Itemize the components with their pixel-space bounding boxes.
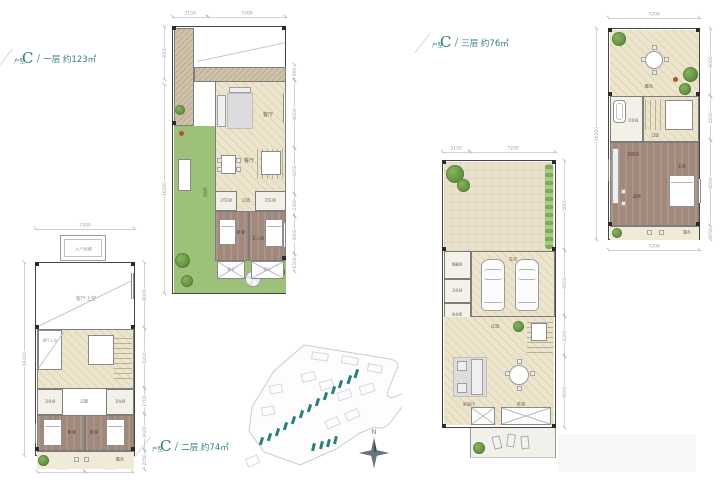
dim-floor2-right-2700: 2700 [144, 388, 145, 414]
room-label-storage: 储藏间 [452, 263, 463, 267]
dim-floor2-left-16200: 16200 [24, 262, 25, 456]
compass-icon [358, 436, 390, 470]
plan-floor2: 7200 入户雨棚 16200 8000 4200 2700 3000 2050… [10, 222, 160, 480]
wall-post [172, 121, 176, 125]
wall-post [608, 28, 612, 32]
wall-post [696, 92, 700, 96]
bed-icon [265, 219, 283, 247]
room-label-terrace-top: 露台 [645, 85, 653, 89]
chair-icon [517, 359, 522, 364]
armchair-icon [457, 361, 467, 371]
dim-floor1-left-3900: 3900 [164, 26, 165, 80]
chair-icon [217, 158, 222, 163]
room-label-void-living: 客厅上空 [76, 296, 96, 301]
caption-letter: C [160, 440, 171, 453]
wall-post [35, 262, 39, 266]
car-icon [515, 259, 539, 311]
dim-floor1-right-3900: 3900 [294, 216, 295, 254]
wardrobe-icon [612, 148, 619, 204]
room-label-bath1: 卫生间 [220, 199, 232, 203]
stair-void [261, 151, 281, 175]
chair-icon [84, 457, 89, 462]
bed-icon [106, 419, 125, 446]
dim-basement-right-6000b: 6000 [564, 356, 565, 428]
stairs [114, 335, 132, 379]
plan-floor3: 7200 16200 6000 4200 6000 2050 7200 露台 卫… [588, 8, 720, 260]
wall-post [442, 160, 446, 164]
room-label-dining: 餐厅 [244, 158, 254, 163]
room-label-sitting: 起居 [633, 195, 641, 199]
bed-icon [669, 175, 695, 207]
tree-icon [457, 179, 470, 192]
ramp-edge-line [197, 42, 285, 62]
stairs [645, 100, 665, 130]
window [283, 93, 286, 123]
chair-icon [652, 70, 657, 75]
room-label-bath: 卫生间 [452, 289, 463, 293]
dim-floor2-right-8000: 8000 [144, 262, 145, 328]
wall-post [35, 325, 39, 329]
chair-icon [659, 230, 664, 235]
caption-letter: C [440, 36, 451, 49]
window [131, 273, 134, 299]
window [698, 179, 701, 203]
tree-icon [679, 83, 691, 95]
wall-post [35, 447, 39, 451]
chair-icon [530, 371, 535, 376]
lounge-chair-icon [492, 435, 503, 450]
wall-post [172, 26, 176, 30]
dim-floor1-right-1500: 1500 [294, 254, 295, 272]
chair-icon [641, 57, 646, 62]
dim-floor3-left-16200: 16200 [596, 28, 597, 240]
room-label-void-dining: 餐厅上空 [43, 339, 57, 343]
room-label-canopy: 入户雨棚 [75, 245, 92, 251]
room-label-terrace: 露台 [116, 458, 124, 462]
caption-separator: / [454, 36, 458, 49]
basement-outline: 车库 储藏间 卫生间 洗衣房 过道 家庭厅 [442, 160, 556, 428]
armchair-icon [457, 383, 467, 393]
stair-void [88, 335, 114, 365]
entry-canopy: 入户雨棚 [60, 235, 106, 261]
room-label-bath2: 卫生间 [264, 199, 276, 203]
caption-floor2: 户型 C / 二层 约74㎡ [152, 440, 229, 453]
wall-post [552, 160, 556, 164]
caption-floor1-label: 一层 约123㎡ [43, 55, 96, 65]
entry-walkway-band [194, 67, 286, 82]
dim-floor1-right-2300: 2300 [294, 194, 295, 216]
storage-closet [471, 407, 495, 425]
stair-void [665, 100, 693, 130]
chair-icon [652, 45, 657, 50]
chair-icon [236, 167, 241, 172]
car-icon [481, 259, 505, 311]
tree-icon [473, 442, 485, 454]
chair-icon [664, 57, 669, 62]
slash-decoration [0, 48, 13, 69]
wall-post [282, 26, 286, 30]
wall-post [608, 222, 612, 226]
chair-icon [621, 189, 626, 194]
north-label: N [356, 428, 392, 436]
plant-icon [513, 321, 524, 332]
floorplan-sheet: 户型 C / 一层 约123㎡ 3150 7200 3900 16200 900… [0, 0, 720, 480]
room-label-patio-left: 露台 [227, 268, 234, 272]
dim-floor3-right-6000b: 6000 [710, 140, 711, 226]
dim-floor2-right-3000: 3000 [144, 414, 145, 450]
dim-basement-right-6000a: 6000 [564, 250, 565, 316]
bed-icon [43, 419, 62, 446]
tree-icon [683, 67, 698, 82]
room-label-hall: 过道 [651, 134, 659, 138]
chair-icon [647, 230, 652, 235]
round-table-icon [645, 51, 663, 69]
lounge-chair-icon [520, 436, 529, 450]
floor1-outline: 花园 客厅 餐厅 [172, 26, 286, 294]
room-label-bath: 卫生间 [628, 119, 639, 123]
tree-icon [38, 455, 49, 466]
dining-table-icon [221, 155, 236, 174]
room-label-master: 主人房 [252, 237, 265, 241]
wall-post [608, 92, 612, 96]
dim-basement-top-7200: 7200 [470, 152, 556, 153]
caption-floor2-label: 二层 约74㎡ [181, 443, 229, 453]
dim-basement-top-3150: 3150 [442, 152, 470, 153]
compass: N [356, 428, 392, 472]
window [608, 159, 611, 181]
dim-floor2-right-2050: 2050 [144, 450, 145, 470]
living-rug [227, 93, 253, 129]
room-label-bath1: 卫生间 [45, 400, 56, 404]
room-label-bed: 卧室 [237, 231, 245, 235]
caption-separator: / [174, 440, 178, 453]
lounge-chair-icon [506, 434, 516, 448]
window [35, 423, 38, 443]
tree-icon [612, 228, 622, 238]
bathtub-icon [613, 100, 626, 123]
dim-floor1-right-4200: 4200 [294, 148, 295, 194]
caption-unit-type: 户型 [14, 60, 21, 66]
floor2-outline: 客厅上空 餐厅上空 卫生间 过道 卫生间 卧室 卧室 露台 [35, 262, 135, 456]
dim-floor1-left-16200: 16200 [164, 84, 165, 294]
room-label-bed2: 卧室 [90, 431, 98, 435]
dim-floor1-right-900: 900 [294, 64, 295, 80]
floor3-outline: 露台 卫生间 过道 衣帽间 主卧 起居 露台 [608, 28, 700, 240]
wall-post [131, 447, 135, 451]
dim-floor3-right-2050: 2050 [710, 226, 711, 240]
chair-icon [217, 167, 222, 172]
dim-floor1-right-6000: 6000 [294, 80, 295, 148]
chair-icon [621, 201, 626, 206]
plan-basement: 3150 7200 5600 6000 4200 6000 车库 储藏间 卫生间… [428, 142, 583, 477]
bed-icon [219, 219, 236, 245]
dim-floor3-right-4200: 4200 [710, 96, 711, 140]
window [283, 223, 286, 247]
watermark [558, 434, 696, 472]
chair-icon [236, 158, 241, 163]
sofa-icon [471, 359, 483, 395]
room-label-hall: 过道 [80, 400, 88, 404]
sofa-icon [229, 87, 251, 93]
caption-floor1: 户型 C / 一层 约123㎡ [14, 52, 96, 65]
dim-floor2-right-4200: 4200 [144, 328, 145, 388]
dim-floor1-top-7200: 7200 [208, 17, 286, 18]
caption-letter: C [22, 52, 33, 65]
wall-post [696, 28, 700, 32]
chair-icon [505, 371, 510, 376]
wall-post [552, 247, 556, 251]
garden-planter-box [178, 159, 191, 191]
tree-icon [181, 275, 193, 287]
room-label-terrace-bottom: 露台 [683, 231, 691, 235]
caption-floor3-label: 三层 约76㎡ [461, 39, 509, 49]
storage-closet [501, 407, 551, 425]
tree-icon [175, 253, 190, 268]
chair-icon [517, 386, 522, 391]
caption-separator: / [36, 52, 40, 65]
room-label-hall: 过道 [242, 199, 250, 203]
dim-floor3-right-6000a: 6000 [710, 28, 711, 96]
dim-floor3-top-7200: 7200 [608, 18, 700, 19]
caption-unit-type: 户型 [432, 44, 439, 50]
plan-floor1: 3150 7200 3900 16200 900 6000 4200 2300 … [158, 8, 328, 308]
hedge-icon [545, 164, 553, 249]
flower-pot-icon [673, 77, 678, 82]
room-label-master: 主卧 [678, 165, 686, 169]
wall-post [442, 247, 446, 251]
room-label-hall: 过道 [491, 325, 499, 329]
wall-post [131, 325, 135, 329]
stair-void [531, 323, 547, 341]
chair-icon [74, 457, 79, 462]
room-label-living: 客厅 [263, 112, 273, 117]
dim-basement-right-4200: 4200 [564, 316, 565, 356]
tree-icon [612, 32, 626, 46]
dim-floor1-top-3150: 3150 [172, 17, 208, 18]
flower-pot-icon [179, 131, 184, 136]
wall-post [131, 262, 135, 266]
room-label-garden: 花园 [202, 187, 207, 197]
room-label-bed1: 卧室 [68, 431, 76, 435]
round-table-icon [509, 365, 529, 385]
sofa-icon [217, 95, 226, 127]
dim-basement-right-5600: 5600 [564, 160, 565, 250]
sunken-patio [470, 428, 556, 458]
tree-icon [175, 105, 185, 115]
slash-decoration [414, 32, 431, 53]
wall-post [282, 256, 286, 260]
wall-post [442, 424, 446, 428]
dim-floor3-bottom-7200: 7200 [608, 250, 700, 251]
room-label-closet: 衣帽间 [627, 153, 639, 157]
void-diagonal [40, 279, 134, 325]
dim-floor2-bottom-3600a: 3600 [37, 472, 85, 473]
dim-floor2-top-7200: 7200 [35, 229, 135, 230]
wall-post [696, 222, 700, 226]
room-label-patio-right: 露台 [263, 268, 270, 272]
caption-floor3: 户型 C / 三层 约76㎡ [432, 36, 509, 49]
room-label-bath2: 卫生间 [115, 400, 126, 404]
dim-floor2-bottom-3600b: 3600 [85, 472, 133, 473]
